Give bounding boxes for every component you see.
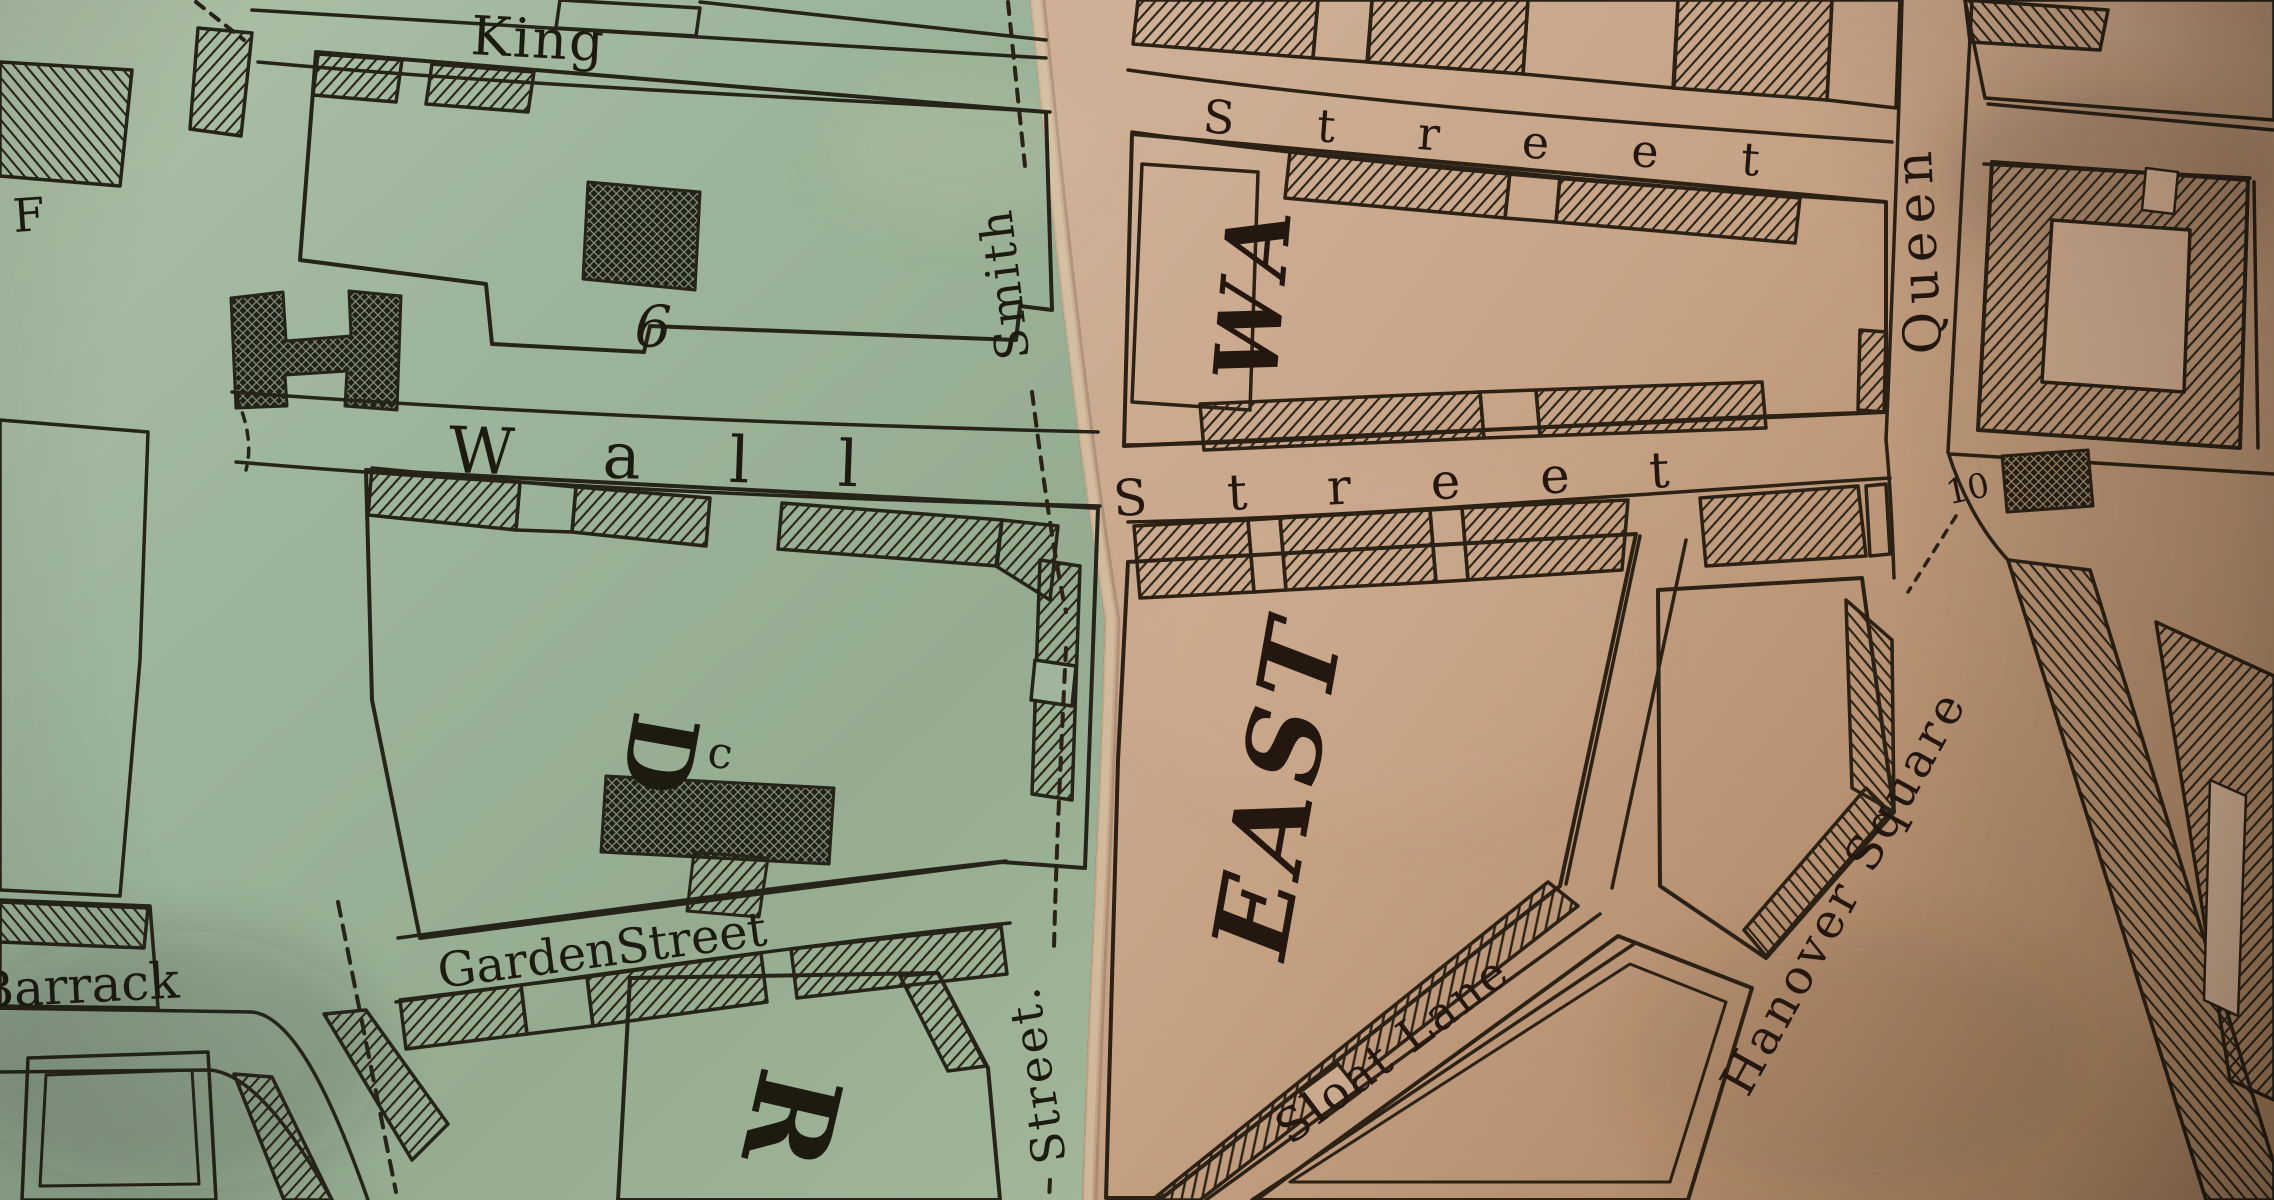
antique-map-photo: King F 6 W a l l D c GardenStreet Barrac…: [0, 0, 2274, 1200]
photo-vignette: [0, 0, 2274, 1200]
map-canvas: King F 6 W a l l D c GardenStreet Barrac…: [0, 0, 2274, 1200]
